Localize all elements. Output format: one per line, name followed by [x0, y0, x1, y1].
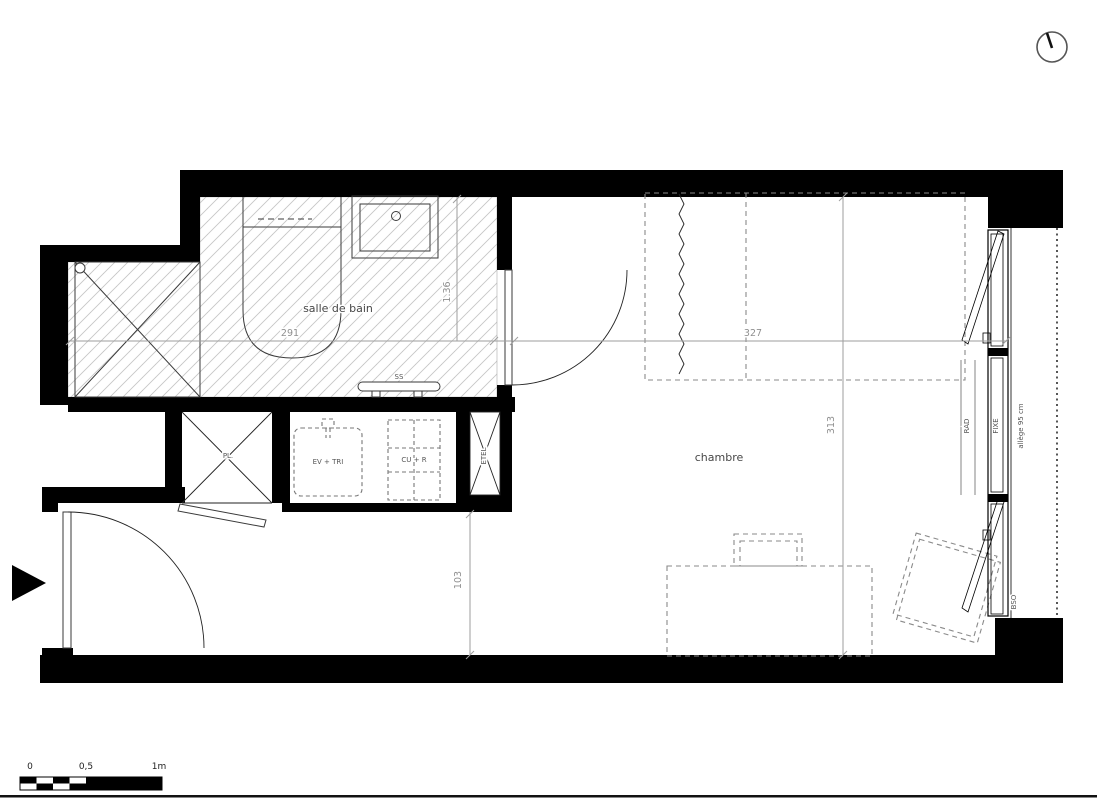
bathroom-label: salle de bain: [303, 302, 373, 315]
closet-door-leaf: [178, 504, 266, 527]
walls: [40, 170, 1063, 683]
blind-label: BSO: [1010, 594, 1018, 609]
entry-door: [63, 512, 204, 648]
shower-head-icon: [75, 263, 85, 273]
floor-plan-sheet: SS PL. EV + TRI CU + R ETEL: [0, 0, 1097, 800]
dim-bedroom-width: 327: [744, 328, 762, 339]
kitchen-cooktop-fridge: CU + R: [388, 420, 440, 500]
floor-plan-drawing: SS PL. EV + TRI CU + R ETEL: [0, 0, 1097, 800]
dim-hall-depth: 103: [453, 571, 464, 589]
scale-zero: 0: [27, 762, 33, 772]
bed-headboard-squiggle: [679, 194, 684, 374]
entrance-arrow-icon: [12, 565, 46, 601]
sheet-bottom-border: [0, 795, 1097, 798]
scale-bar: 0 0,5 1m: [20, 762, 166, 790]
north-indicator-icon: [1037, 32, 1067, 62]
scale-one: 1m: [152, 762, 167, 772]
technical-duct: ETEL: [470, 412, 500, 495]
towel-dryer-label: SS: [395, 373, 404, 381]
dim-bathroom-depth: 1.36: [442, 281, 453, 302]
kitchen-sink-unit: EV + TRI: [294, 419, 362, 496]
duct-label: ETEL: [480, 447, 488, 464]
window-assembly: RAD FIXE allège 95 cm BSO: [961, 228, 1057, 618]
window-open-leaf-bottom: [962, 499, 1004, 612]
chair: [892, 533, 1002, 643]
fixed-pane-label: FIXE: [992, 418, 1000, 433]
closet-pl: PL.: [178, 412, 272, 527]
dim-bathroom-width: 291: [281, 328, 299, 339]
sofa-desk: [667, 534, 872, 656]
bathroom-door: [505, 270, 627, 385]
kitchen-sink-label: EV + TRI: [313, 458, 344, 466]
bedroom-label: chambre: [695, 451, 744, 464]
dim-bedroom-depth: 313: [826, 416, 837, 434]
window-open-leaf-top: [962, 231, 1004, 344]
radiator-label: RAD: [963, 419, 971, 434]
closet-label: PL.: [223, 452, 233, 460]
sill-label: allège 95 cm: [1017, 403, 1025, 448]
kitchen-cooktop-label: CU + R: [401, 456, 426, 464]
bed: [645, 193, 965, 380]
scale-half: 0,5: [79, 762, 93, 772]
